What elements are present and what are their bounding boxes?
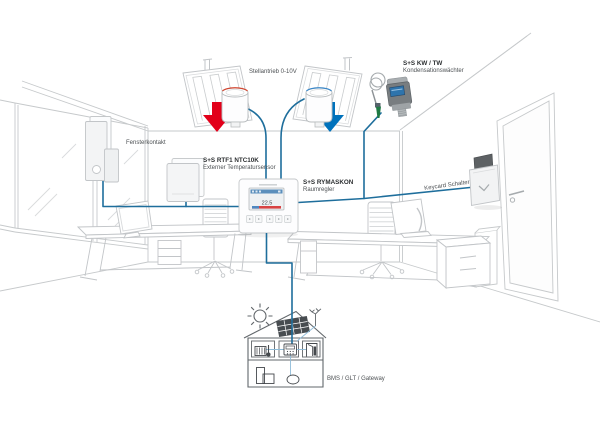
diagram-artwork: 22.5: [0, 0, 600, 424]
pump-icon: [287, 375, 299, 384]
controller-buttons: [247, 216, 292, 223]
drawer-unit-left: [158, 241, 181, 265]
controller-brand-mark: [259, 184, 277, 186]
controller-screen: 22.5: [249, 188, 284, 210]
monitor-display: [390, 86, 405, 97]
house-body: [248, 338, 323, 387]
door: [497, 93, 558, 301]
temp-sensor-device: [167, 159, 204, 202]
antenna-icon: [310, 309, 322, 327]
cabinet-right-desk-small: [301, 241, 317, 273]
pipe-stub-right: [343, 58, 352, 71]
monitor-right: [391, 199, 431, 238]
keycard-switch-device: [470, 154, 503, 210]
label-condensation-monitor: S+S KW / TW Kondensationswächter: [403, 60, 464, 75]
label-room-controller: S+S RYMASKON Raumregler: [303, 179, 353, 194]
filing-cabinet-right: [437, 236, 490, 288]
boiler-icon: [257, 368, 275, 384]
window-contact-device: [86, 117, 119, 183]
cable-coil: [371, 73, 385, 87]
label-actuator: Stellantrieb 0-10V: [249, 69, 297, 77]
radiator-icon: [255, 345, 270, 356]
condensation-monitor-device: [370, 73, 414, 118]
label-bms: BMS / GLT / Gateway: [327, 376, 385, 384]
sun-icon: [248, 304, 273, 329]
desk-left: [78, 224, 252, 280]
label-temp-sensor: S+S RTF1 NTC10K Externer Temperatursenso…: [203, 157, 276, 172]
valve-actuator-heating: [222, 88, 248, 127]
label-window-contact: Fensterkontakt: [126, 140, 166, 148]
keypad-icon: [284, 344, 297, 355]
utility-door-icon: [307, 344, 318, 357]
house-icons: [255, 344, 317, 385]
controller-temperature-readout: 22.5: [262, 201, 273, 207]
office-chair-left: [195, 199, 234, 277]
diagram-canvas: 22.5: [0, 0, 600, 424]
probe-tip: [376, 107, 381, 119]
valve-actuator-cooling: [306, 88, 332, 127]
room-controller-device: 22.5: [238, 179, 298, 238]
